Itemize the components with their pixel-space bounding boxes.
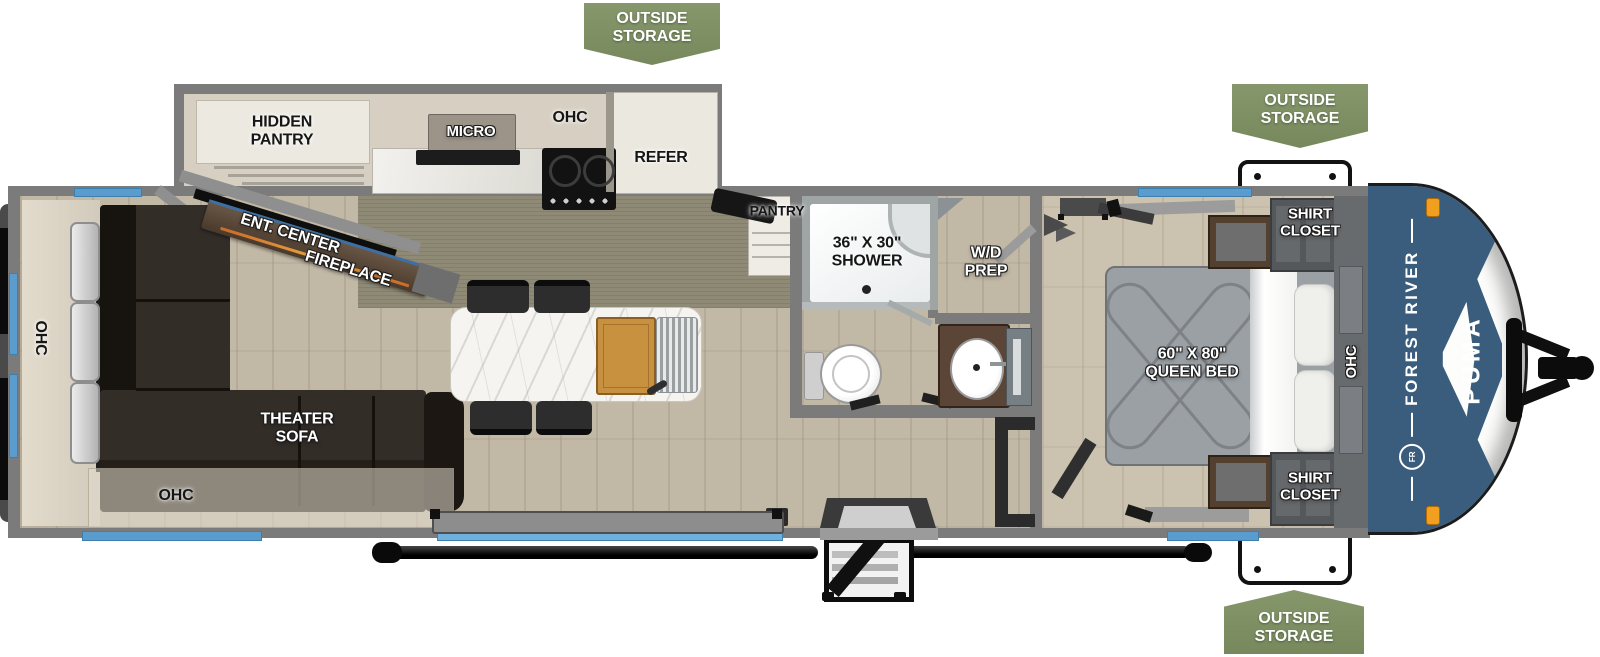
bath-wall (790, 196, 802, 418)
stove-knobs (547, 197, 611, 205)
door-swing-arrow-icon (1044, 214, 1068, 236)
theater-sofa-label: THEATER SOFA (261, 410, 334, 445)
shower-drain-icon (862, 285, 871, 294)
shirt-closet-top-label: SHIRT CLOSET (1280, 207, 1340, 240)
awning-rail-endcap-right (1184, 543, 1212, 562)
refrigerator (606, 92, 718, 194)
ohc-kitchen-label: OHC (553, 109, 588, 127)
ohc-bottom-label: OHC (159, 487, 194, 505)
vanity-sink (950, 338, 1004, 400)
entry-door-sill (820, 526, 938, 540)
headrest-cushion (70, 382, 100, 464)
marker-light-icon (1426, 198, 1440, 217)
banner-label: OUTSIDE STORAGE (1255, 610, 1334, 647)
rack-bracket (772, 509, 782, 519)
pillow (1294, 370, 1336, 452)
banner-label: OUTSIDE STORAGE (613, 10, 692, 47)
nightstand (1208, 215, 1274, 269)
awning-rail-endcap-left (372, 542, 402, 563)
awning-rail-right (906, 546, 1190, 558)
headrest-cushion (70, 302, 100, 382)
latch-dot-icon (1254, 173, 1261, 180)
bath-wall (935, 313, 1042, 324)
burner-icon (549, 155, 581, 187)
accent-line (1411, 477, 1413, 501)
accent-line (1411, 219, 1413, 243)
queen-bed-label: 60" X 80" QUEEN BED (1145, 345, 1238, 380)
window (9, 273, 18, 355)
pillow (1294, 284, 1336, 366)
ohc-bedroom-label: OHC (1344, 346, 1361, 379)
micro-label: MICRO (447, 124, 496, 141)
hidden-pantry-label: HIDDEN PANTRY (251, 113, 314, 148)
window (1138, 188, 1252, 197)
window (9, 374, 18, 458)
doorframe (995, 514, 1035, 527)
hitch-coupler-icon (1570, 356, 1594, 380)
ohc-rear-label: OHC (31, 321, 49, 356)
banner-label: OUTSIDE STORAGE (1261, 92, 1340, 129)
flip-down-rack (432, 511, 784, 534)
pantry-label: PANTRY (750, 203, 805, 218)
window (1167, 531, 1259, 541)
nightstand (1208, 455, 1274, 509)
faucet-icon (990, 362, 1006, 366)
front-cap: FR FOREST RIVER PUMA (1368, 183, 1528, 535)
shower-label: 36" X 30" SHOWER (832, 234, 903, 269)
ohc-overlay (88, 468, 454, 528)
rv-floorplan: FR FOREST RIVER PUMA OUTSIDE STORAGE OUT… (0, 0, 1600, 657)
shower-glass (802, 302, 930, 310)
wd-prep-label: W/D PREP (965, 244, 1008, 279)
model-name: PUMA (1458, 315, 1487, 405)
rack-bracket (430, 509, 440, 519)
step-foot (822, 592, 834, 601)
latch-dot-icon (1254, 566, 1261, 573)
island-chair (470, 401, 532, 435)
hitch-jack-plate (1506, 318, 1522, 422)
island-chair (536, 401, 592, 435)
latch-dot-icon (1329, 173, 1336, 180)
linen-cabinet (1006, 328, 1032, 406)
step-foot (894, 592, 906, 601)
doorframe (995, 417, 1008, 527)
island-chair (467, 280, 529, 313)
accent-line (1411, 413, 1413, 437)
island-chair (534, 280, 590, 313)
refer-label: REFER (634, 149, 687, 167)
window (74, 188, 142, 197)
outside-storage-banner-front-bottom: OUTSIDE STORAGE (1224, 590, 1364, 654)
outside-storage-banner-front-top: OUTSIDE STORAGE (1232, 84, 1368, 148)
marker-light-icon (1426, 506, 1440, 525)
window (82, 531, 262, 541)
latch-dot-icon (1329, 566, 1336, 573)
awning-rail-left (378, 546, 818, 559)
bedroom-shelf (1145, 507, 1249, 522)
shirt-closet-bottom-label: SHIRT CLOSET (1280, 471, 1340, 504)
outside-storage-banner-top: OUTSIDE STORAGE (584, 3, 720, 65)
headrest-cushion (70, 222, 100, 302)
range-hood-vent (416, 150, 520, 165)
cutting-board (596, 317, 656, 395)
burner-icon (583, 155, 615, 187)
forest-river-logo-icon: FR (1399, 444, 1425, 470)
bed-sheet (1250, 268, 1297, 464)
brand-name: FOREST RIVER (1402, 250, 1422, 406)
brand-lockup: FR FOREST RIVER (1399, 219, 1425, 501)
